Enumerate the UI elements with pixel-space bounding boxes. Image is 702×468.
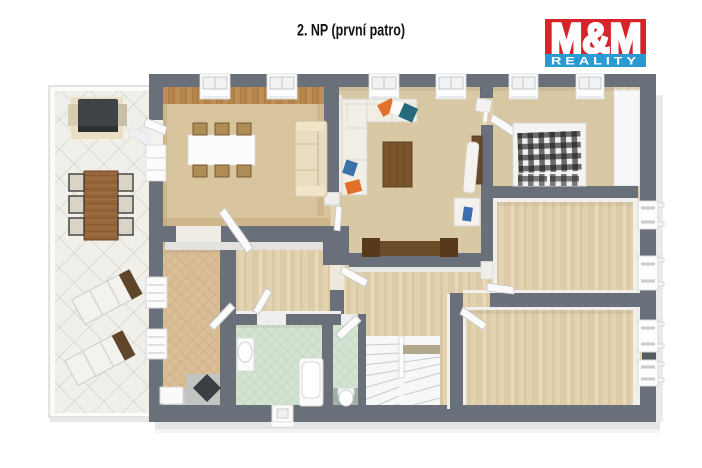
svg-text:2. NP (první patro): 2. NP (první patro) [297, 21, 405, 40]
svg-text:REALITY: REALITY [551, 56, 640, 68]
